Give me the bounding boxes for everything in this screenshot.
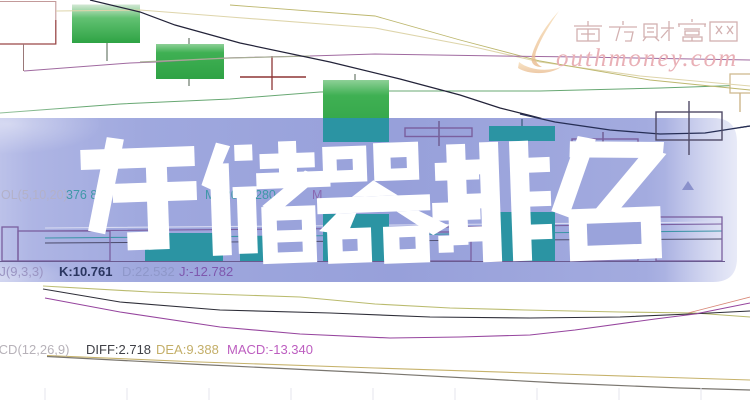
svg-text:outhmoney.com: outhmoney.com xyxy=(556,45,738,72)
svg-text:376 8: 376 8 xyxy=(66,188,97,202)
svg-text:J:-12.782: J:-12.782 xyxy=(179,264,233,279)
svg-text:DJ(9,3,3): DJ(9,3,3) xyxy=(0,264,43,279)
svg-text:K:10.761: K:10.761 xyxy=(59,264,112,279)
svg-text:D:22.532: D:22.532 xyxy=(122,264,175,279)
svg-text:MACD:-13.340: MACD:-13.340 xyxy=(227,342,313,357)
svg-text:ACD(12,26,9): ACD(12,26,9) xyxy=(0,342,69,357)
svg-text:OL(5,10,20): OL(5,10,20) xyxy=(1,188,68,202)
svg-text:DIFF:2.718: DIFF:2.718 xyxy=(86,342,151,357)
svg-text:DEA:9.388: DEA:9.388 xyxy=(156,342,219,357)
